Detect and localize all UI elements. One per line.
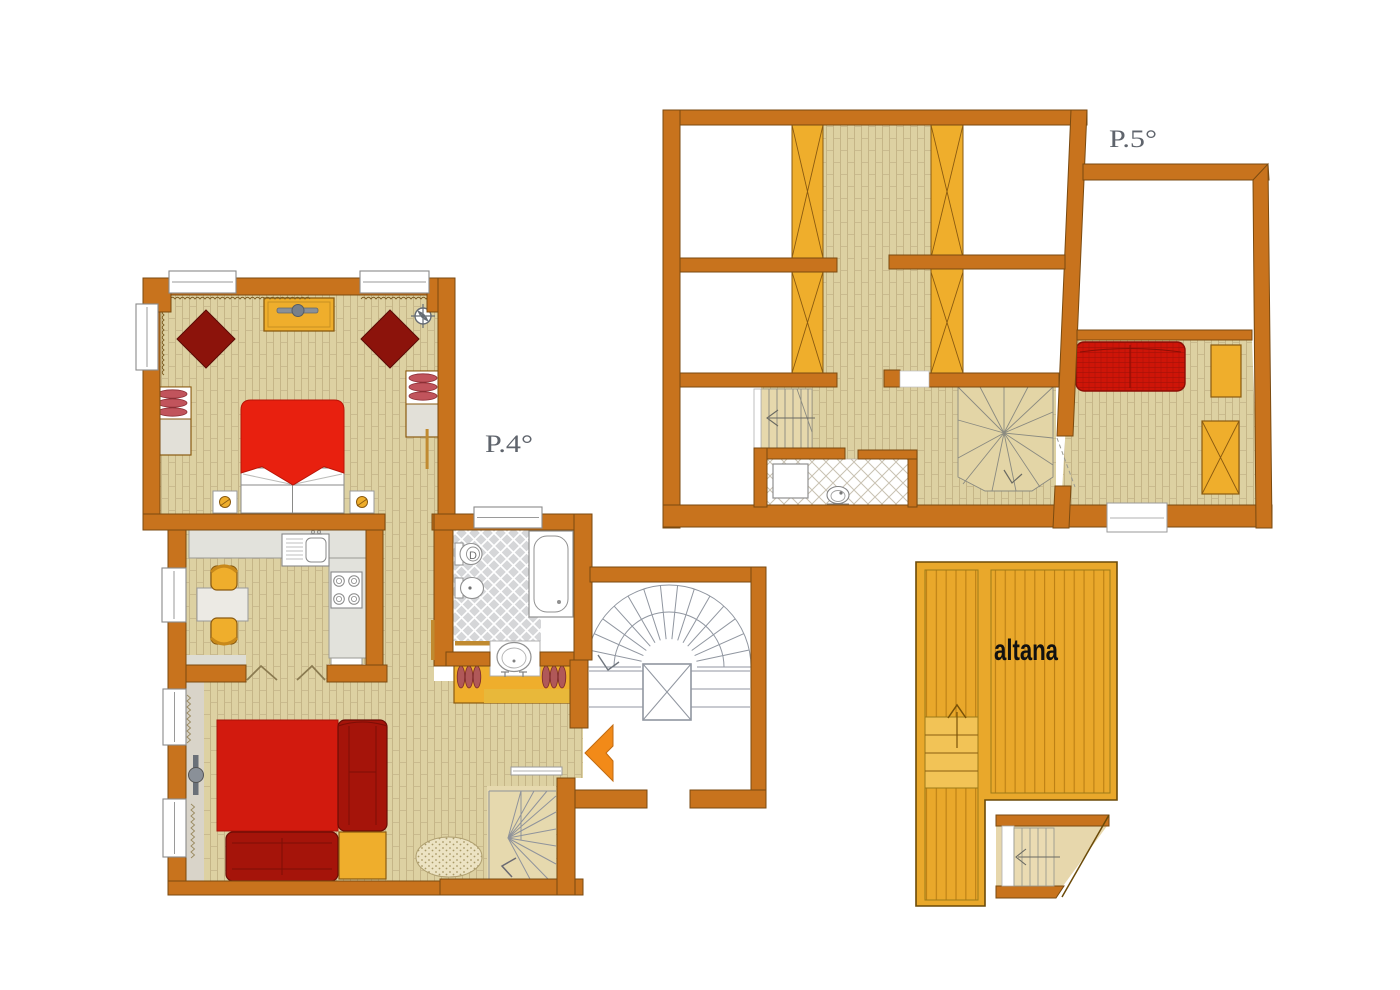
- svg-text:P.5°: P.5°: [1109, 126, 1157, 153]
- svg-text:altana: altana: [994, 634, 1058, 667]
- svg-text:D: D: [469, 550, 477, 562]
- svg-text:P.4°: P.4°: [485, 431, 533, 458]
